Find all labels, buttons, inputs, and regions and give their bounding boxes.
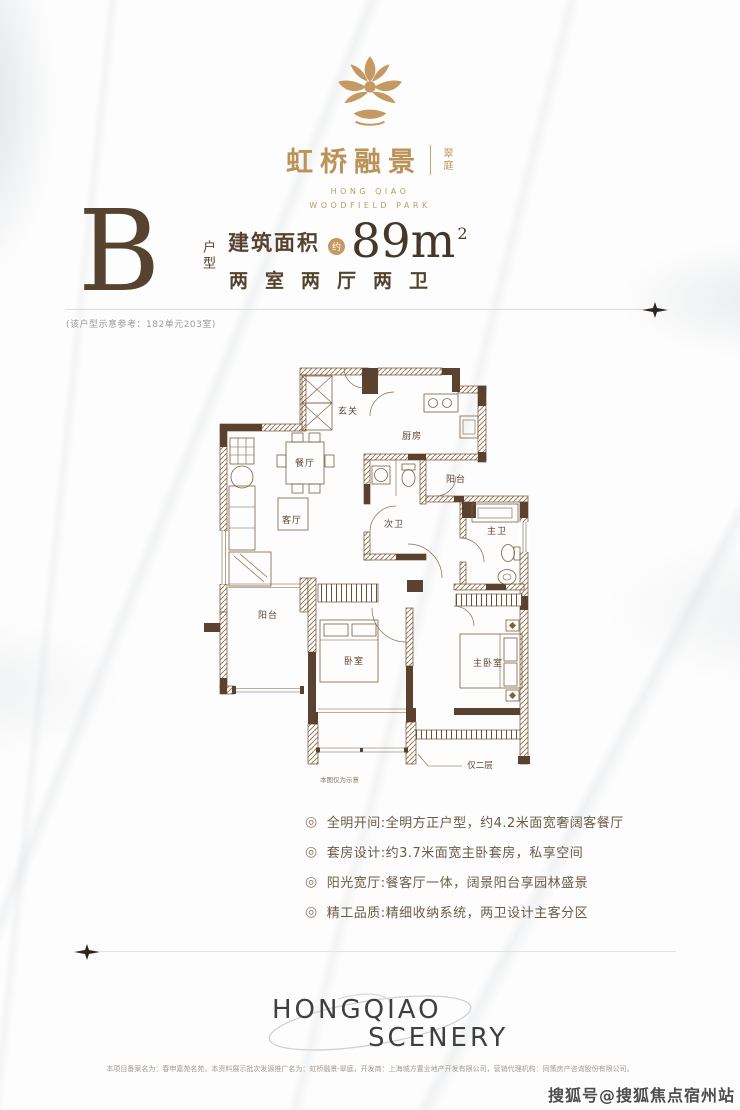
double-circle-bullet-icon: ◎ <box>305 905 318 919</box>
walls-hatched-layer <box>220 368 528 764</box>
room-label-dining: 餐厅 <box>295 457 315 469</box>
footer-logo-line1: HONGQIAO <box>272 995 442 1025</box>
legal-fineprint: 本项目备案名为：春申嘉苑名苑，本资料展示批次发源推广名为：虹桥融景·翠庭，开发商… <box>10 1064 730 1074</box>
room-label-balcony-right: 阳台 <box>446 473 466 485</box>
unit-type-label: 户型 <box>198 240 217 272</box>
room-label-living: 客厅 <box>282 514 302 526</box>
area-value: 89m <box>351 218 455 265</box>
room-label-bath2: 次卫 <box>384 518 404 530</box>
brand-divider <box>430 145 431 175</box>
footer-logo-line2: SCENERY <box>368 1023 508 1053</box>
approx-badge: 约 <box>328 238 345 255</box>
brand-suffix-cn: 翠庭 <box>439 148 454 172</box>
plan-disclaimer: 本图仅为示意 <box>320 775 360 784</box>
footer-wordmark: HONGQIAO SCENERY <box>220 985 520 1065</box>
unit-area-row: 建筑面积 约 89m 2 <box>228 218 466 265</box>
poster-page: 虹桥融景 翠庭 HONG QIAO WOODFIELD PARK B 户型 建筑… <box>0 0 740 1110</box>
bottom-divider-line <box>100 951 676 952</box>
brand-name-cn: 虹桥融景 <box>286 140 422 179</box>
room-label-kitchen: 厨房 <box>402 430 422 442</box>
room-label-bedroom-master: 主卧室 <box>473 657 503 669</box>
room-label-bedroom: 卧室 <box>344 655 364 667</box>
feature-item: ◎ 阳光宽厅:餐客厅一体，阔景阳台享园林盛景 <box>305 872 624 891</box>
area-superscript: 2 <box>457 224 467 243</box>
sparkle-star-icon-right <box>642 302 668 318</box>
double-circle-bullet-icon: ◎ <box>305 875 318 889</box>
feature-list: ◎ 全明开间:全明方正户型，约4.2米面宽奢阔客餐厅 ◎ 套房设计:约3.7米面… <box>305 812 624 921</box>
sparkle-star-icon-left <box>74 944 100 960</box>
terrace-layer <box>316 748 462 767</box>
feature-item: ◎ 套房设计:约3.7米面宽主卧套房，私享空间 <box>305 842 624 861</box>
watermark-text: 搜狐号@搜狐焦点宿州站 <box>548 1082 735 1106</box>
room-label-balcony-left: 阳台 <box>258 609 278 621</box>
area-label: 建筑面积 <box>228 227 320 265</box>
double-circle-bullet-icon: ◎ <box>305 815 318 829</box>
peony-flower-icon <box>329 52 411 134</box>
feature-item: ◎ 全明开间:全明方正户型，约4.2米面宽奢阔客餐厅 <box>305 812 624 831</box>
floorplan-drawing: 玄关 厨房 餐厅 阳台 客厅 次卫 主卫 阳台 卧室 主卧室 仅二层 本图仅为示… <box>204 356 536 788</box>
feature-text: 全明开间:全明方正户型，约4.2米面宽奢阔客餐厅 <box>327 812 624 831</box>
feature-text: 阳光宽厅:餐客厅一体，阔景阳台享园林盛景 <box>327 872 588 891</box>
room-label-bath-master: 主卫 <box>487 525 507 537</box>
double-circle-bullet-icon: ◎ <box>305 845 318 859</box>
top-divider-line <box>66 309 646 310</box>
brand-name-row: 虹桥融景 翠庭 <box>0 140 740 179</box>
feature-text: 精工品质:精细收纳系统，两卫设计主客分区 <box>327 902 588 921</box>
floor-annotation: 仅二层 <box>467 760 493 771</box>
unit-type-letter: B <box>78 196 160 308</box>
reference-note: (该户型示意参考：182单元203室) <box>66 317 216 330</box>
feature-text: 套房设计:约3.7米面宽主卧套房，私享空间 <box>327 842 584 861</box>
feature-item: ◎ 精工品质:精细收纳系统，两卫设计主客分区 <box>305 902 624 921</box>
room-label-entry: 玄关 <box>338 405 358 417</box>
unit-layout-desc: 两室两厅两卫 <box>229 266 445 293</box>
